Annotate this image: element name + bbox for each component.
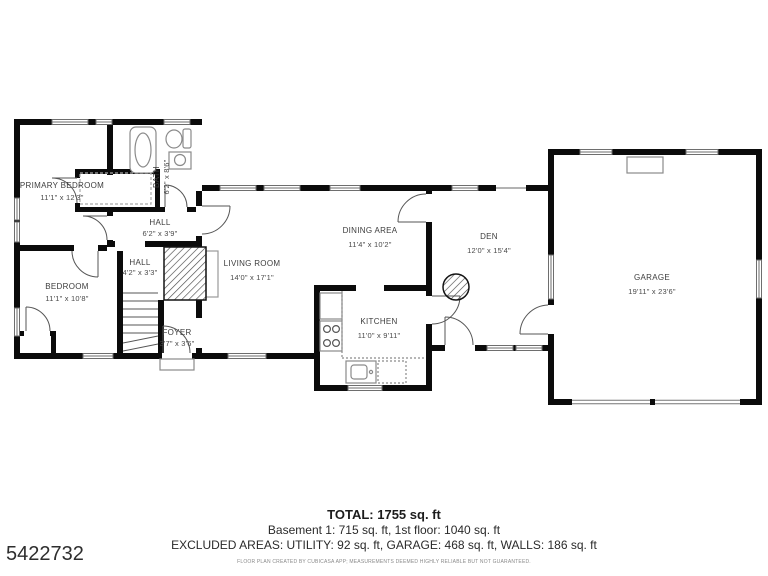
den-chimney [443, 274, 469, 300]
room-label-hall-upper: HALL [149, 218, 170, 227]
room-dims-living-room: 14'0" x 17'1" [230, 273, 274, 282]
room-dims-dining-area: 11'4" x 10'2" [348, 240, 391, 249]
floor-areas: Basement 1: 715 sq. ft, 1st floor: 1040 … [0, 523, 768, 537]
room-dims-den: 12'0" x 15'4" [467, 246, 511, 255]
door-swing [26, 307, 50, 331]
window [15, 308, 20, 336]
window [228, 354, 266, 359]
room-dims-garage: 19'11" x 23'6" [628, 287, 676, 296]
floor-plan-drawing: PRIMARY BEDROOM 11'1" x 12'3" BATH 6'2" … [0, 0, 768, 500]
room-label-primary-bedroom: PRIMARY BEDROOM [20, 181, 104, 190]
door-swing [202, 206, 230, 234]
window [164, 120, 190, 125]
room-label-bedroom: BEDROOM [45, 282, 88, 291]
excluded-areas: EXCLUDED AREAS: UTILITY: 92 sq. ft, GARA… [0, 538, 768, 552]
wall-openings [24, 178, 554, 359]
window [686, 150, 718, 155]
room-label-kitchen: KITCHEN [360, 317, 397, 326]
window [348, 386, 382, 391]
window [15, 222, 20, 242]
door-swing [445, 317, 473, 345]
doors [26, 178, 548, 353]
window [83, 354, 113, 359]
stove [320, 321, 342, 351]
dishwasher [378, 361, 406, 383]
door-swing [520, 305, 548, 334]
fireplace-hearth [206, 251, 218, 297]
window [580, 150, 612, 155]
garage-door [572, 399, 740, 405]
room-label-dining-area: DINING AREA [343, 226, 398, 235]
room-label-garage: GARAGE [634, 273, 670, 282]
window [452, 186, 478, 191]
room-dims-bath: 6'2" x 8'6" [162, 159, 171, 194]
front-stoop [160, 359, 194, 370]
door-swing [83, 216, 107, 240]
door-swing [398, 194, 426, 222]
room-dims-kitchen: 11'0" x 9'11" [358, 331, 401, 340]
bathroom-sink [169, 152, 191, 169]
room-label-foyer: FOYER [162, 328, 191, 337]
listing-id: 5422732 [6, 543, 84, 566]
window [264, 186, 300, 191]
refrigerator [320, 293, 342, 319]
disclaimer: FLOOR PLAN CREATED BY CUBICASA APP; MEAS… [0, 559, 768, 565]
room-dims-hall-lower: 4'2" x 3'3" [123, 268, 158, 277]
room-dims-bedroom: 11'1" x 10'8" [45, 294, 88, 303]
kitchen-sink [346, 361, 376, 383]
window [487, 346, 513, 351]
window [220, 186, 256, 191]
room-dims-primary-bedroom: 11'1" x 12'3" [40, 193, 83, 202]
window [516, 346, 542, 351]
room-label-den: DEN [480, 232, 498, 241]
window [330, 186, 360, 191]
attic-hatch [627, 157, 663, 173]
total-area: TOTAL: 1755 sq. ft [0, 507, 768, 522]
window [549, 255, 554, 299]
room-label-living-room: LIVING ROOM [224, 259, 281, 268]
chimney-block [164, 247, 206, 300]
room-label-bath: BATH [152, 166, 161, 188]
toilet [166, 129, 191, 148]
area-summary: TOTAL: 1755 sq. ft Basement 1: 715 sq. f… [0, 507, 768, 565]
window [96, 120, 112, 125]
door-swing [72, 251, 98, 277]
room-label-hall-lower: HALL [129, 258, 150, 267]
window [52, 120, 88, 125]
stairs [123, 293, 158, 351]
room-dims-foyer: 3'7" x 3'6" [160, 339, 195, 348]
window [15, 198, 20, 220]
window [757, 260, 762, 298]
room-dims-hall-upper: 6'2" x 3'9" [143, 229, 178, 238]
floor-plan-page: PRIMARY BEDROOM 11'1" x 12'3" BATH 6'2" … [0, 0, 768, 576]
